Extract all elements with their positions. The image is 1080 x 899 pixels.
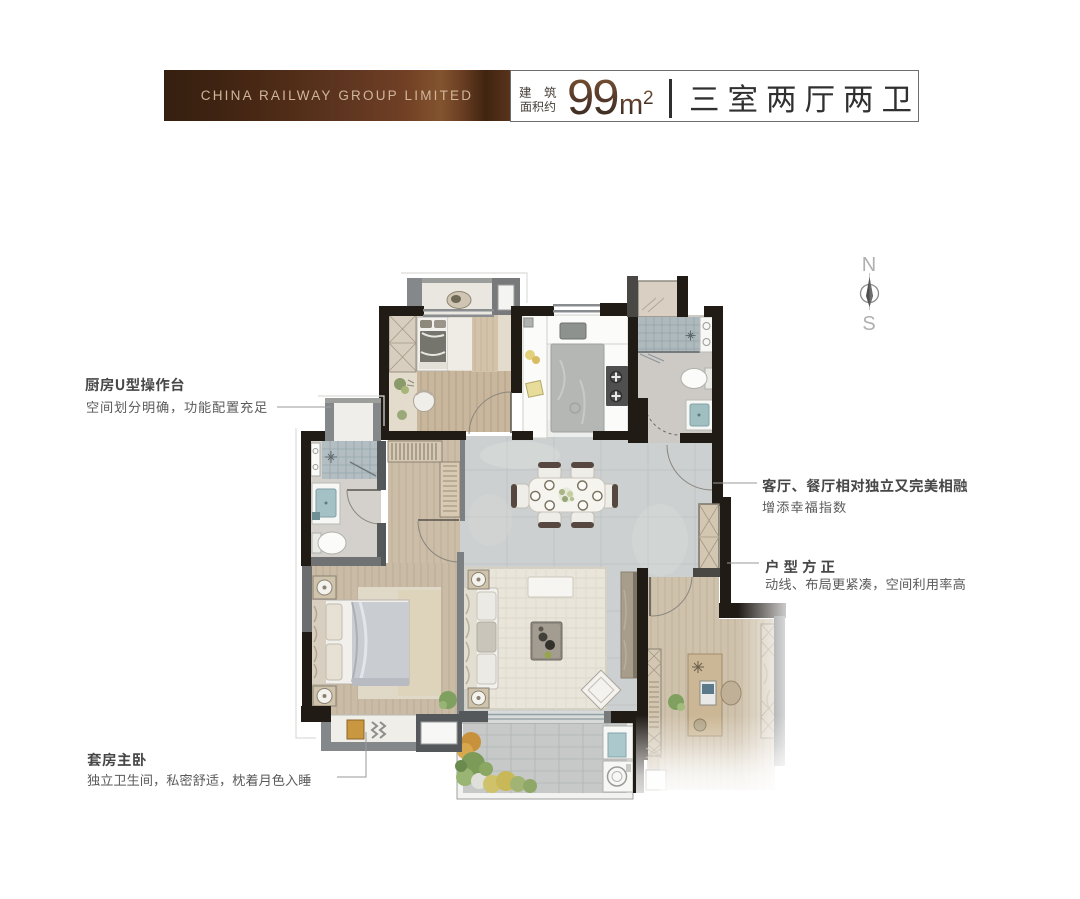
- svg-text:99: 99: [567, 71, 618, 125]
- svg-text:S: S: [862, 313, 875, 335]
- svg-text:N: N: [862, 254, 876, 276]
- svg-text:m: m: [619, 89, 643, 121]
- svg-text:2: 2: [643, 88, 654, 109]
